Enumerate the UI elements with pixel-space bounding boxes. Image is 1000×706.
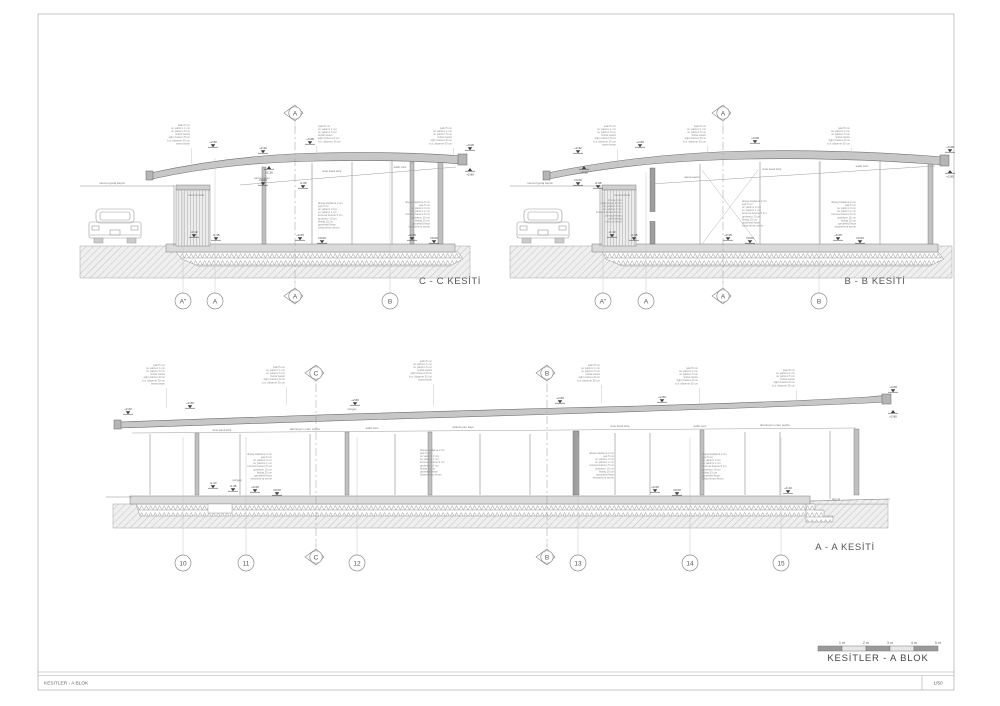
elevation-marker: -0.08 — [298, 181, 308, 188]
annotation-note-line: sıkıştırılmış zemin — [250, 476, 272, 480]
grid-bubble: A" — [175, 279, 191, 309]
annotation-note-line: b.a. döşeme 30 cm — [429, 141, 453, 145]
small-label: kutu kesit kiriş — [213, 428, 232, 432]
elevation-arrow-down — [231, 488, 236, 491]
annotation-note-line: asma tavan — [418, 377, 432, 381]
elevation-marker: +0.05 — [723, 233, 733, 240]
small-label: asma tavan — [684, 175, 700, 179]
elevation-value: -0.35 — [212, 233, 219, 237]
gravel-bed-cc — [176, 252, 463, 266]
scalebar-label: 4 m — [911, 641, 917, 645]
gravel-bed-aa — [136, 504, 806, 516]
door-gap-bb — [648, 212, 657, 221]
elevation-arrow-down — [301, 185, 306, 188]
annotation-note-line: b.a. döşeme 30 cm — [683, 139, 707, 143]
section-marker: A — [712, 105, 731, 130]
elevation-value: -0.35 — [630, 233, 637, 237]
grid-bubble: B — [811, 279, 827, 309]
grid-bubble: A — [207, 279, 223, 309]
elevation-marker: -0.10 — [208, 481, 218, 488]
elevation-value: +2.80 — [209, 140, 217, 144]
scalebar-segment — [866, 646, 890, 651]
elevation-arrow-down — [726, 237, 731, 240]
scalebar-label: 2 m — [863, 641, 869, 645]
annotation-note-line: b.a. döşeme 30 cm — [318, 139, 342, 143]
elevation-marker: +3.08 — [465, 143, 475, 150]
car-drawing-bb — [517, 209, 569, 243]
elevation-value: -0.08 — [299, 181, 306, 185]
grid-bubble: 11 — [238, 541, 254, 571]
annotation-note-line: sıkıştırılmış zemin — [408, 224, 430, 228]
wall-right-aa — [854, 429, 859, 495]
elevation-value: -0.10 — [608, 230, 615, 234]
elevation-marker: +3.08 — [750, 136, 760, 143]
sections-drawing: KESITLER - A BLOK 1/50 C - C KESİTİ — [0, 0, 1000, 706]
grid-bubble-label: 11 — [243, 560, 250, 567]
grid-bubble: 12 — [349, 541, 365, 571]
elevation-value: ±0.00 — [318, 236, 326, 240]
elevation-value: +3.08 — [946, 145, 954, 149]
annotation-note-line: asma tavan — [602, 142, 616, 146]
annotation-note-line: sıkıştırılmış zemin — [592, 475, 614, 479]
elevation-arrow-down — [596, 185, 601, 188]
small-label: kutu kesit kiriş — [323, 169, 342, 173]
elevation-arrow-down — [253, 489, 258, 492]
roof-slab-cc — [150, 153, 461, 179]
small-label: alüminyum cam cephe — [760, 423, 790, 427]
elevation-arrow-up — [468, 168, 473, 171]
elevation-marker: +3.08 — [305, 137, 315, 144]
annotation-notes-layer: çakıl 5 cmsu yalıtımı 1 cmısı yalıtımı 5… — [142, 123, 857, 480]
elevation-arrow-down — [858, 240, 863, 243]
grid-bubble-label: A — [644, 298, 649, 305]
elevation-value: ±0.00 — [746, 236, 754, 240]
small-label: mevcut bina — [188, 193, 205, 197]
elevation-arrow-down — [298, 237, 303, 240]
elevation-marker: +2.80 — [657, 395, 667, 402]
elevation-value: +2.62 — [259, 146, 267, 150]
floor-slab-aa — [130, 496, 810, 504]
wall-right-cc — [438, 160, 443, 244]
grid-bubble: B — [382, 279, 398, 309]
elevation-value: -0.10 — [209, 481, 216, 485]
grid-bubble-label: B — [388, 298, 392, 305]
elevation-arrow-down — [211, 144, 216, 147]
elevation-value: +2.80 — [636, 140, 644, 144]
elevation-value: +2.80 — [351, 398, 359, 402]
section-title-bb: B - B KESİTİ — [844, 276, 905, 287]
wall-lintel-cc — [176, 185, 210, 190]
column-aa-1 — [195, 433, 199, 495]
elevation-arrow-down — [836, 237, 841, 240]
annotation-note-line: b.a. döşeme 30 cm — [577, 378, 601, 382]
section-marker: B — [536, 365, 555, 390]
annotation-note-line: sıkıştırılmış zemin — [318, 225, 340, 229]
elevation-value: +2.62 — [574, 146, 582, 150]
elevation-value: +2.80 — [186, 401, 194, 405]
titleblock-title: KESITLER - A BLOK — [44, 681, 89, 687]
grid-lines-layer — [183, 126, 819, 547]
wall-lintel-bb — [602, 185, 636, 190]
section-marker: A — [284, 105, 303, 130]
fascia-right-cc — [458, 154, 467, 165]
small-label: mevcut bina — [614, 193, 631, 197]
grid-bubble-label: 14 — [686, 560, 694, 567]
elevation-marker: +2.80 — [888, 410, 898, 419]
elevation-arrow-down — [558, 400, 563, 403]
elevation-value: +2.30 — [265, 171, 273, 175]
elevation-value: -0.35 — [229, 484, 236, 488]
legend-title: KESİTLER - A BLOK — [827, 653, 928, 664]
elevation-arrow-down — [308, 141, 313, 144]
scalebar-layer: 1 m2 m3 m4 m5 m — [818, 641, 941, 651]
section-aa: A - A KESİTİ — [106, 394, 891, 553]
section-marker: A — [712, 279, 731, 304]
small-label: alüminyum cam cephe — [290, 427, 320, 431]
elevation-arrow-up — [267, 166, 272, 169]
section-title-cc: C - C KESİTİ — [419, 276, 481, 287]
fascia-right-bb — [940, 155, 949, 166]
annotation-note-line: b.a. döşeme 30 cm — [772, 383, 796, 387]
elevation-marker: +3.08 — [945, 145, 955, 152]
drain-pit-aa — [208, 504, 232, 513]
elevation-arrow-down — [432, 240, 437, 243]
elevation-marker: -0.35 — [211, 233, 221, 240]
elevation-marker: +0.05 — [250, 485, 260, 492]
elevation-marker: +2.80 — [185, 401, 195, 408]
small-label: drenaj — [832, 497, 841, 501]
elevation-arrow-down — [468, 147, 473, 150]
elevation-arrow-down — [786, 490, 791, 493]
elevation-arrow-down — [675, 492, 680, 495]
elevation-marker: +2.62 — [258, 146, 268, 153]
elevation-value: +3.08 — [306, 137, 314, 141]
elevation-value: +2.80 — [466, 173, 474, 177]
elevation-value: +3.08 — [466, 143, 474, 147]
scalebar-segment — [914, 646, 938, 651]
small-label: sabit cam — [856, 164, 869, 168]
elevation-value: +2.30 — [580, 171, 588, 175]
elevation-value: ±0.00 — [273, 488, 281, 492]
elevation-value: ±0.00 — [430, 236, 438, 240]
elevation-value: +0.05 — [834, 233, 842, 237]
elevation-arrow-down — [261, 150, 266, 153]
elevation-value: +2.62 — [124, 407, 132, 411]
scalebar-segment — [818, 646, 842, 651]
existing-wall-cc — [176, 190, 210, 246]
elevation-marker: ±0.00 — [258, 178, 268, 185]
elevation-marker: +2.62 — [123, 407, 133, 414]
annotation-note-line: b.a. döşeme 30 cm — [827, 141, 851, 145]
sheet-frame — [38, 14, 954, 690]
elevation-value: ±0.00 — [673, 488, 681, 492]
elevation-marker: +0.10 — [783, 486, 793, 493]
annotation-note-line: asma tavan — [176, 141, 190, 145]
elevation-marker: ±0.00 — [672, 488, 682, 495]
annotation-note-line: sıkıştırılmış zemin — [702, 476, 724, 480]
elevation-value: +0.05 — [296, 233, 304, 237]
section-marker: B — [536, 540, 555, 565]
elevation-marker: -0.35 — [228, 484, 238, 491]
elevation-arrow-down — [275, 492, 280, 495]
elevation-value: ±0.00 — [574, 178, 582, 182]
fascia-left-cc — [146, 171, 153, 180]
grid-bubble: 15 — [773, 541, 789, 571]
small-label: sabit cam — [394, 165, 407, 169]
elevation-arrow-down — [638, 144, 643, 147]
scalebar-segment — [842, 646, 866, 651]
section-marker: A — [284, 279, 303, 304]
grid-bubble: 10 — [175, 541, 191, 571]
elevation-arrow-down — [320, 240, 325, 243]
annotation-note-line: b.a. döşeme 30 cm — [675, 381, 699, 385]
grid-bubble: 13 — [570, 541, 586, 571]
column-bb-1 — [650, 168, 655, 244]
elevation-marker: +0.05 — [650, 485, 660, 492]
gravel-bed-bb — [602, 252, 944, 266]
small-label: süzgeç — [232, 478, 242, 482]
elevation-arrow-down — [660, 399, 665, 402]
section-marker-label: C — [314, 370, 319, 377]
small-label: kutu kesit kiriş — [763, 167, 782, 171]
small-label: süzgeç — [347, 407, 357, 411]
annotation-note-line: sıkıştırılmış zemin — [742, 223, 764, 227]
car-drawing-cc — [89, 209, 141, 243]
grid-bubble: A" — [595, 279, 611, 309]
grid-bubble-label: A" — [180, 298, 187, 305]
grid-bubble-label: 13 — [574, 560, 582, 567]
fascia-right-aa — [882, 394, 891, 404]
elevation-arrow-down — [753, 140, 758, 143]
elevation-marker: +0.05 — [407, 233, 417, 240]
section-marker-label: A — [721, 293, 726, 300]
annotation-note-line: b.a. döşeme 30 cm — [262, 380, 286, 384]
elevation-marker: +0.05 — [295, 233, 305, 240]
wall-right-bb — [928, 160, 933, 244]
elevation-arrow-down — [211, 485, 216, 488]
elevation-value: +0.05 — [724, 233, 732, 237]
section-marker-label: B — [545, 554, 549, 561]
elevation-value: +0.05 — [651, 485, 659, 489]
elevation-marker: ±0.00 — [573, 178, 583, 185]
elevation-arrow-down — [353, 402, 358, 405]
grid-bubble-label: 15 — [777, 560, 785, 567]
elevation-marker: +2.80 — [945, 170, 955, 179]
section-marker-label: A — [721, 110, 726, 117]
section-marker-label: C — [314, 554, 319, 561]
grid-bubble-label: B — [817, 298, 821, 305]
scalebar-segment — [890, 646, 914, 651]
elevation-arrow-down — [948, 149, 953, 152]
scalebar-label: 1 m — [839, 641, 845, 645]
floor-slab-bb — [592, 244, 938, 252]
small-label: sabit cam — [694, 424, 707, 428]
elevation-marker: +2.80 — [555, 396, 565, 403]
elevation-marker: -0.08 — [593, 181, 603, 188]
grid-bubble-label: A — [213, 298, 218, 305]
elevation-marker: +2.80 — [350, 398, 360, 405]
elevation-marker: +2.80 — [635, 140, 645, 147]
small-label: sabit cam — [366, 426, 379, 430]
elevation-arrow-down — [891, 389, 896, 392]
elevation-value: -0.10 — [190, 230, 197, 234]
elevation-value: ±0.00 — [856, 236, 864, 240]
elevation-arrow-down — [576, 150, 581, 153]
elevation-marker: ±0.00 — [745, 236, 755, 243]
grid-bubble: A — [638, 279, 654, 309]
elevation-arrow-up — [948, 170, 953, 173]
section-marker-label: A — [293, 293, 298, 300]
elevation-value: +2.80 — [889, 415, 897, 419]
elevation-value: +2.80 — [946, 175, 954, 179]
elevation-value: ±0.00 — [259, 178, 267, 182]
elevation-marker: +2.62 — [573, 146, 583, 153]
elevation-value: +0.10 — [784, 486, 792, 490]
fascia-left-aa — [114, 420, 121, 429]
column-aa-2 — [345, 432, 349, 495]
small-label: mevcut garaj kapısı — [99, 181, 125, 185]
elevation-value: -0.08 — [594, 181, 601, 185]
small-label: mevcut garaj kapısı — [527, 181, 553, 185]
annotation-note-line: sıkıştırılmış zemin — [834, 224, 856, 228]
elevation-value: +0.05 — [408, 233, 416, 237]
elevation-arrow-down — [126, 411, 131, 414]
elevation-value: +2.80 — [556, 396, 564, 400]
section-bb: B - B KESİTİ — [510, 151, 952, 287]
ceiling-beam-aa — [132, 428, 856, 433]
elevation-marker: ±0.00 — [272, 488, 282, 495]
section-marker-label: B — [545, 370, 549, 377]
elevation-arrow-down — [576, 182, 581, 185]
grid-bubble-label: 10 — [179, 560, 187, 567]
grid-bubble: 14 — [682, 541, 698, 571]
elevation-marker: +3.08 — [888, 385, 898, 392]
elevation-value: +3.08 — [889, 385, 897, 389]
elevation-arrow-down — [748, 240, 753, 243]
titleblock-scale: 1/50 — [933, 681, 943, 687]
annotation-note-line: asma tavan — [151, 381, 165, 385]
annotation-note-line: mevcut zemin — [605, 219, 622, 223]
grid-bubble-label: 12 — [353, 560, 361, 567]
drawing-sheet: KESITLER - A BLOK 1/50 C - C KESİTİ — [0, 0, 1000, 706]
elevation-marker: +2.80 — [465, 168, 475, 177]
elevation-arrow-down — [214, 237, 219, 240]
small-label: kutu kesit kiriş — [611, 424, 630, 428]
section-marker: C — [305, 540, 324, 565]
elevation-marker: ±0.00 — [429, 236, 439, 243]
grid-bubble-label: A" — [600, 298, 607, 305]
elevation-value: +0.05 — [251, 485, 259, 489]
scalebar-label: 3 m — [887, 641, 893, 645]
section-marker: C — [305, 365, 324, 390]
elevation-marker: ±0.00 — [855, 236, 865, 243]
elevation-value: +3.08 — [751, 136, 759, 140]
elevation-value: +2.80 — [658, 395, 666, 399]
elevation-arrow-down — [188, 405, 193, 408]
roof-slab-bb — [547, 151, 944, 179]
elevation-arrow-up — [891, 410, 896, 413]
elevation-marker: +2.80 — [208, 140, 218, 147]
section-title-aa: A - A KESİTİ — [815, 542, 874, 553]
elevation-marker: +0.05 — [833, 233, 843, 240]
small-label: alüminyum kapı — [452, 425, 473, 429]
section-marker-label: A — [293, 110, 298, 117]
elevation-marker: ±0.00 — [317, 236, 327, 243]
elevation-arrow-down — [653, 489, 658, 492]
scalebar-label: 5 m — [935, 641, 941, 645]
fascia-left-bb — [543, 171, 550, 180]
annotation-note-line: sıkıştırılmış zemin — [420, 472, 442, 476]
